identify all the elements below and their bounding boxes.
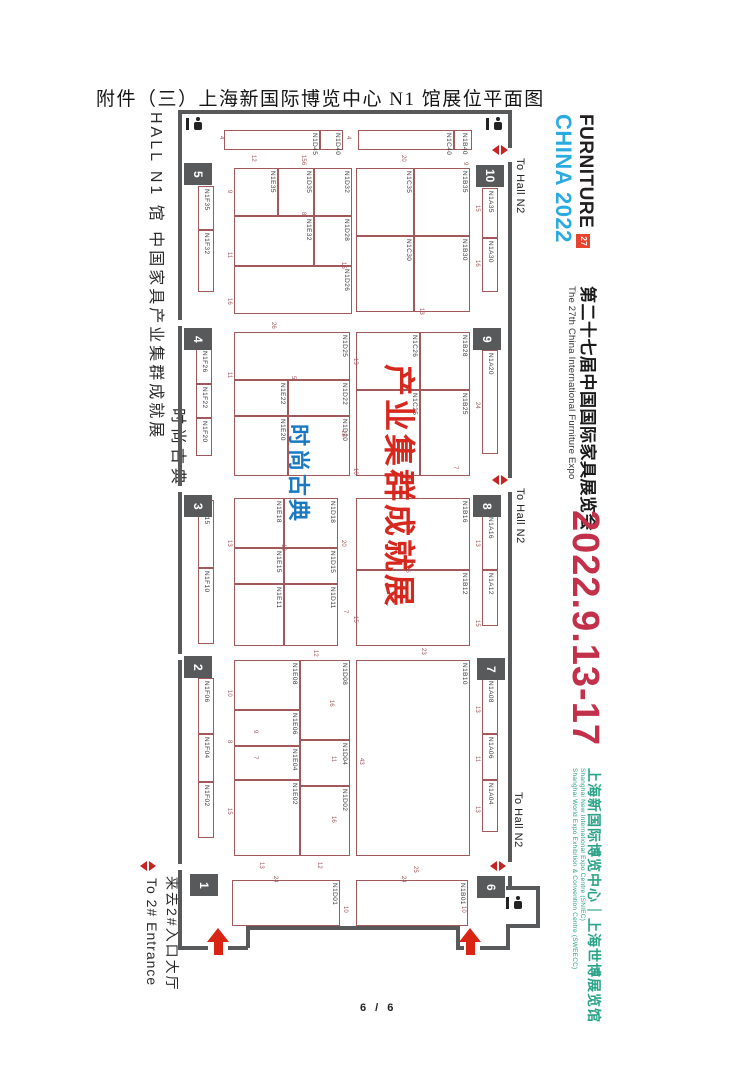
- booth-label: N1A16: [487, 517, 494, 539]
- dimension-label: 15: [340, 262, 346, 269]
- dimension-label: 13: [258, 862, 264, 869]
- booth-N1F06: N1F06: [198, 678, 214, 734]
- booth-label: N1F04: [203, 737, 210, 759]
- booth-label: N1D35: [305, 171, 312, 193]
- dimension-label: 16: [226, 298, 232, 305]
- wall-segment: [246, 926, 250, 948]
- dimension-label: 8: [300, 212, 306, 215]
- wall-segment: [508, 110, 512, 148]
- booth-label: N1D18: [329, 501, 336, 523]
- booth-N1D01: N1D01: [232, 880, 340, 926]
- dimension-label: 9: [252, 730, 258, 733]
- booth-label: N1B10: [461, 663, 468, 685]
- booth-N1D28: N1D28: [314, 216, 352, 266]
- booth-N1E32: N1E32: [234, 216, 314, 266]
- booth-label: N1D01: [331, 883, 338, 905]
- to-hall-n2-label: To Hall N2: [512, 792, 524, 848]
- gate-block-1: 1: [190, 874, 218, 896]
- wall-segment: [178, 492, 182, 654]
- arrow-left-icon: [140, 861, 147, 871]
- booth-N1F04: N1F04: [198, 734, 214, 782]
- dimension-label: 24: [400, 876, 406, 883]
- booth-label: N1D26: [343, 269, 350, 291]
- dimension-label: 11: [474, 756, 480, 762]
- arrow-right-icon: [501, 475, 508, 485]
- gate-block-5: 5: [184, 163, 212, 185]
- booth-label: N1C40: [445, 133, 452, 155]
- dimension-label: 4: [345, 136, 351, 139]
- restroom-icon: [186, 117, 204, 130]
- booth-N1F20: N1F20: [196, 418, 212, 456]
- arrow-shaft: [466, 942, 475, 955]
- dimension-label: 13: [474, 706, 480, 713]
- booth-label: N1A12: [487, 573, 494, 595]
- booth-N1E15: N1E15: [234, 548, 284, 584]
- gate-block-7: 7: [477, 658, 505, 680]
- wall-segment: [178, 326, 182, 486]
- booth-label: N1E02: [291, 783, 298, 805]
- arrow-right-icon: [149, 861, 156, 871]
- booth-label: N1E15: [275, 551, 282, 573]
- booth-label: N1B40: [461, 133, 468, 155]
- booth-label: N1C30: [405, 239, 412, 261]
- booth-label: N1E18: [275, 501, 282, 523]
- booth-label: N1A30: [487, 241, 494, 263]
- gate-block-4: 4: [184, 328, 212, 350]
- dimension-label: 13: [474, 806, 480, 813]
- gate-number: 10: [483, 169, 497, 182]
- booth-label: N1D22: [341, 383, 348, 405]
- booth-N1C35: N1C35: [356, 168, 414, 236]
- hall-passage-arrows-icon: [140, 861, 156, 871]
- booth-N1A08: N1A08: [482, 678, 498, 734]
- wall-segment: [228, 946, 248, 950]
- dimension-label: 9: [226, 190, 232, 193]
- dimension-label: 10: [342, 906, 348, 913]
- booth-N1A20: N1A20: [482, 350, 498, 454]
- dimension-label: 6: [300, 162, 306, 165]
- dimension-label: 16: [328, 700, 334, 707]
- booth-label: N1F02: [203, 785, 210, 807]
- booth-label: N1F20: [201, 421, 208, 443]
- booth-label: N1F22: [201, 387, 208, 409]
- booth-N1D45: N1D45: [224, 130, 320, 150]
- booth-N1E06: N1E06: [234, 710, 300, 746]
- booth-N1E02: N1E02: [234, 780, 300, 856]
- dimension-label: 11: [330, 756, 336, 762]
- booth-N1E08: N1E08: [234, 660, 300, 710]
- wall-segment: [180, 110, 512, 114]
- arrow-left-icon: [492, 475, 499, 485]
- booth-label: N1D02: [341, 789, 348, 811]
- gate-number: 2: [191, 664, 205, 671]
- booth-label: N1B28: [461, 335, 468, 357]
- booth-N1B01: N1B01: [356, 880, 468, 926]
- booth-label: N1A08: [487, 681, 494, 703]
- restroom-person: [512, 896, 524, 909]
- booth-label: N1D15: [329, 551, 336, 573]
- gate-number: 4: [191, 336, 205, 343]
- booth-N1D04: N1D04: [300, 740, 350, 786]
- booth-N1B40: N1B40: [454, 130, 472, 150]
- dimension-label: 11: [226, 252, 232, 258]
- dimension-label: 15: [474, 205, 480, 212]
- gate-number: 9: [480, 336, 494, 343]
- booth-N1F26: N1F26: [196, 348, 212, 384]
- gate-block-10: 10: [476, 165, 504, 187]
- booth-N1D15: N1D15: [284, 548, 338, 584]
- booth-N1A30: N1A30: [482, 238, 498, 292]
- booth-N1A35: N1A35: [482, 188, 498, 238]
- dimension-label: 12: [250, 155, 256, 162]
- booth-N1D26: N1D26: [234, 266, 352, 314]
- gate-block-6: 6: [477, 876, 505, 898]
- hall-passage-arrows-icon: [492, 145, 508, 155]
- wall-segment: [178, 870, 182, 950]
- dimension-label: 11: [226, 372, 232, 378]
- restroom-icon: [506, 896, 524, 909]
- dimension-label: 13: [352, 358, 358, 365]
- booth-N1F02: N1F02: [198, 782, 214, 838]
- booth-label: N1B01: [459, 883, 466, 905]
- dimension-label: 13: [280, 544, 286, 551]
- booth-N1F22: N1F22: [196, 384, 212, 418]
- restroom-icon: [486, 117, 504, 130]
- arrow-left-icon: [490, 861, 497, 871]
- dimension-label: 12: [312, 650, 318, 657]
- booth-N1A16: N1A16: [482, 514, 498, 570]
- booth-N1E11: N1E11: [234, 584, 284, 646]
- dimension-label: 15: [226, 808, 232, 815]
- dimension-label: 23: [420, 648, 426, 655]
- booth-N1D08: N1D08: [300, 660, 350, 740]
- dimension-label: 7: [452, 466, 458, 469]
- booth-N1D11: N1D11: [284, 584, 338, 646]
- wall-segment: [508, 876, 512, 890]
- dimension-label: 15: [352, 616, 358, 623]
- booth-label: N1D40: [334, 133, 341, 155]
- dimension-label: 15: [340, 430, 346, 437]
- dimension-label: 15: [474, 620, 480, 627]
- arrow-shaft: [214, 942, 223, 955]
- booth-label: N1D32: [343, 171, 350, 193]
- booth-label: N1A06: [487, 737, 494, 759]
- booth-label: N1A04: [487, 783, 494, 805]
- arrow-left-icon: [492, 145, 499, 155]
- booth-N1B30: N1B30: [414, 236, 470, 312]
- restroom-divider: [486, 118, 489, 130]
- dimension-label: 10: [226, 690, 232, 697]
- booth-label: N1E11: [275, 587, 282, 608]
- wall-segment: [536, 886, 540, 926]
- booth-N1F10: N1F10: [198, 568, 214, 644]
- wall-segment: [178, 660, 182, 864]
- gate-block-8: 8: [473, 495, 501, 517]
- dimension-label: 25: [412, 866, 418, 873]
- arrow-right-icon: [501, 145, 508, 155]
- booth-N1E35: N1E35: [234, 168, 278, 216]
- booth-N1B25: N1B25: [420, 390, 470, 476]
- dimension-label: 16: [474, 260, 480, 267]
- page-number: 6 / 6: [360, 1002, 396, 1014]
- arrow-head: [207, 928, 229, 942]
- dimension-label: 13: [226, 540, 232, 547]
- dimension-label: 24: [474, 402, 480, 409]
- booth-label: N1D28: [343, 219, 350, 241]
- hall-passage-arrows-icon: [490, 861, 506, 871]
- booth-label: N1B12: [461, 573, 468, 595]
- booth-N1B10: N1B10: [356, 660, 470, 856]
- dimension-label: 8: [226, 740, 232, 743]
- wall-segment: [506, 924, 540, 928]
- booth-label: N1E08: [291, 663, 298, 685]
- overlay-cluster-achievement: 产业集群成就展: [378, 364, 424, 609]
- booth-N1D35: N1D35: [278, 168, 314, 216]
- hall-passage-arrows-icon: [492, 475, 508, 485]
- booth-label: N1D25: [341, 335, 348, 357]
- booth-N1F32: N1F32: [198, 230, 214, 292]
- dimension-label: 5: [290, 376, 296, 379]
- booth-N1A06: N1A06: [482, 734, 498, 780]
- booth-label: N1B16: [461, 501, 468, 523]
- gate-number: 1: [197, 882, 211, 889]
- booth-N1D02: N1D02: [300, 786, 350, 856]
- dimension-label: 12: [316, 862, 322, 869]
- dimension-label: 4: [218, 136, 224, 139]
- restroom-person: [192, 117, 204, 130]
- booth-N1B35: N1B35: [414, 168, 470, 236]
- restroom-person: [492, 117, 504, 130]
- wall-segment: [178, 110, 182, 320]
- dimension-label: 20: [340, 540, 346, 547]
- booth-label: N1D11: [329, 587, 336, 609]
- entrance-arrow-icon: [458, 928, 482, 955]
- restroom-divider: [506, 897, 509, 909]
- booth-label: N1B25: [461, 393, 468, 415]
- dimension-label: 10: [352, 468, 358, 475]
- booth-N1C40: N1C40: [358, 130, 454, 150]
- booth-label: N1A35: [487, 191, 494, 213]
- to-hall-n2-label: To Hall N2: [514, 488, 526, 544]
- booth-N1D22: N1D22: [288, 380, 350, 416]
- booth-label: N1C35: [405, 171, 412, 193]
- dimension-label: 13: [418, 308, 424, 315]
- booth-N1A12: N1A12: [482, 570, 498, 626]
- booth-N1F35: N1F35: [198, 186, 214, 230]
- booth-label: N1D04: [341, 743, 348, 765]
- dimension-label: 9: [462, 162, 468, 165]
- restroom-divider: [186, 118, 189, 130]
- booth-label: N1F35: [203, 189, 210, 211]
- booth-N1D40: N1D40: [320, 130, 343, 150]
- booth-N1B28: N1B28: [420, 332, 470, 390]
- booth-label: N1E22: [279, 383, 286, 405]
- dimension-label: 7: [252, 756, 258, 759]
- wall-segment: [178, 946, 208, 950]
- gate-number: 6: [484, 884, 498, 891]
- booth-label: N1F06: [203, 681, 210, 703]
- booth-label: N1A20: [487, 353, 494, 375]
- to-hall-n2-label: To Hall N2: [514, 158, 526, 214]
- booth-label: N1B35: [461, 171, 468, 193]
- booth-N1E22: N1E22: [234, 380, 288, 416]
- booth-N1E04: N1E04: [234, 746, 300, 780]
- booth-label: N1E04: [291, 749, 298, 771]
- dimension-label: 20: [400, 155, 406, 162]
- booth-label: N1D45: [311, 133, 318, 155]
- booth-label: N1B30: [461, 239, 468, 261]
- booth-N1C30: N1C30: [356, 236, 414, 312]
- booth-label: N1E35: [269, 171, 276, 193]
- gate-block-3: 3: [184, 495, 212, 517]
- gate-number: 3: [191, 503, 205, 510]
- wall-segment: [506, 924, 510, 948]
- dimension-label: 15: [300, 155, 306, 162]
- booth-N1A04: N1A04: [482, 780, 498, 832]
- booth-N1D32: N1D32: [314, 168, 352, 216]
- entrance-arrow-icon: [206, 928, 230, 955]
- booth-label: N1F26: [201, 351, 208, 373]
- booth-label: N1C26: [411, 335, 418, 357]
- dimension-label: 16: [330, 816, 336, 823]
- booth-label: N1E06: [291, 713, 298, 735]
- gate-number: 8: [480, 503, 494, 510]
- gate-number: 5: [191, 171, 205, 178]
- booth-label: N1D08: [341, 663, 348, 685]
- wall-segment: [246, 926, 460, 930]
- arrow-right-icon: [499, 861, 506, 871]
- dimension-label: 43: [358, 758, 364, 765]
- dimension-label: 7: [342, 610, 348, 613]
- gate-number: 7: [484, 666, 498, 673]
- booth-N1E18: N1E18: [234, 498, 284, 548]
- dimension-label: 10: [460, 906, 466, 913]
- booth-N1E20: N1E20: [234, 416, 288, 476]
- gate-block-2: 2: [184, 656, 212, 678]
- dimension-label: 24: [272, 876, 278, 883]
- gate-block-9: 9: [473, 328, 501, 350]
- booth-label: N1F10: [203, 571, 210, 593]
- dimension-label: 26: [270, 322, 276, 329]
- booth-label: N1F32: [203, 233, 210, 255]
- wall-segment: [508, 162, 512, 478]
- dimension-label: 13: [474, 540, 480, 547]
- booth-label: N1E32: [305, 219, 312, 241]
- booth-N1D25: N1D25: [234, 332, 350, 380]
- arrow-head: [459, 928, 481, 942]
- overlay-fashion-classic: 时尚古典: [284, 424, 316, 524]
